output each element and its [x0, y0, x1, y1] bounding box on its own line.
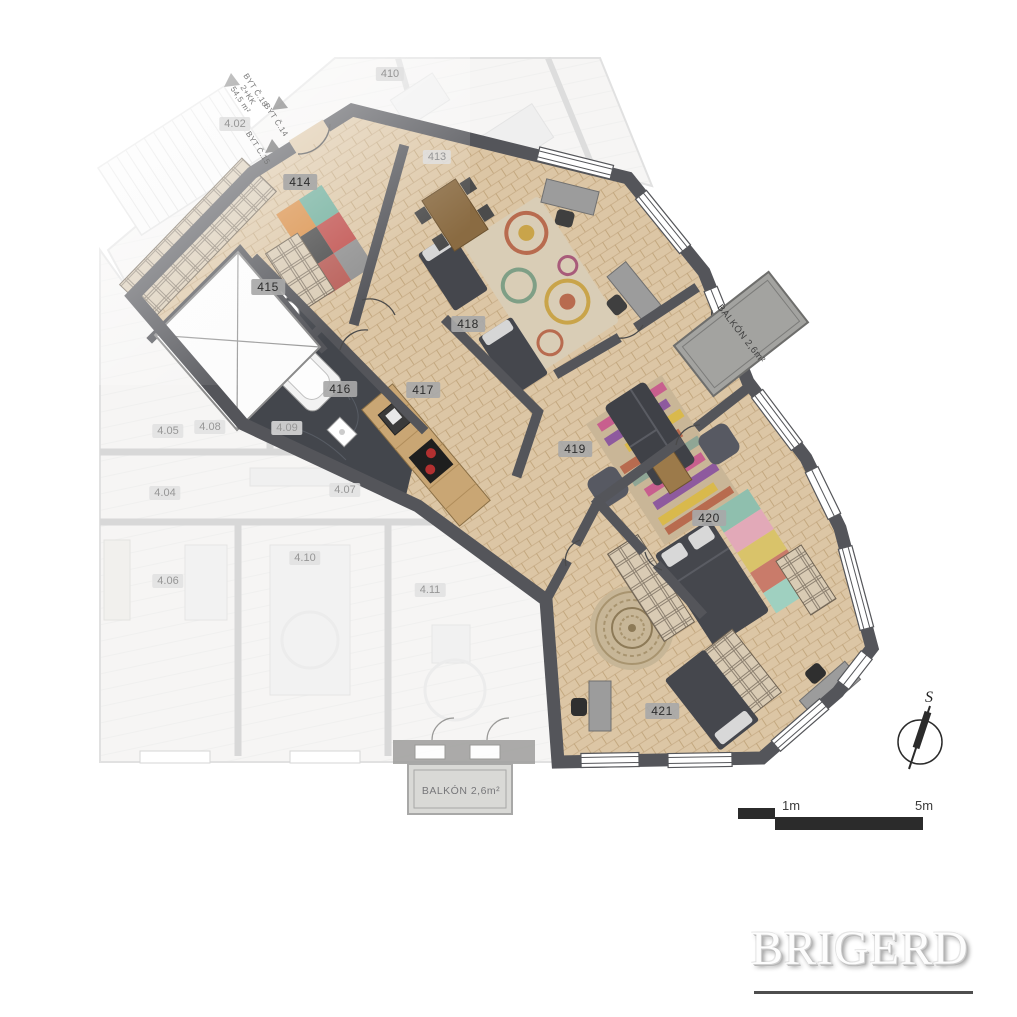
faded-window: [290, 751, 360, 763]
brand-logo-underline: [754, 991, 973, 994]
compass-north-label: S: [925, 689, 933, 707]
window: [668, 752, 732, 767]
room-label-411: 4.11: [415, 583, 446, 597]
window: [581, 752, 639, 767]
room-label-414: 414: [283, 174, 317, 190]
faded-bed-410: [270, 545, 350, 695]
brand-logo: BRIGERD: [751, 921, 969, 976]
room-label-418: 418: [451, 316, 485, 332]
room-label-408: 4.08: [194, 420, 225, 434]
room-label-410-apt: 410: [376, 67, 404, 81]
compass: [898, 706, 942, 769]
room-label-406: 4.06: [152, 574, 183, 588]
compass-needle-thick-icon: [916, 712, 928, 748]
scale-segment-short: [738, 808, 775, 819]
floorplan-canvas: 414 415 416 417 418 419 420 421 4.02 410…: [0, 0, 1017, 1017]
balcony-bottom-label: BALKÓN 2,6m²: [422, 785, 500, 797]
faded-window: [140, 751, 210, 763]
room-label-410: 4.10: [289, 551, 320, 565]
white-fade-overlay: [90, 45, 470, 385]
room-label-407: 4.07: [329, 483, 360, 497]
room-label-415: 415: [251, 279, 285, 295]
room-label-421: 421: [645, 703, 679, 719]
scale-label-5m: 5m: [915, 798, 933, 813]
room-label-404: 4.04: [149, 486, 180, 500]
room-label-419: 419: [558, 441, 592, 457]
room-label-420: 420: [692, 510, 726, 526]
scale-bar: [738, 808, 923, 830]
scale-segment-long: [775, 817, 923, 830]
room-label-405: 4.05: [152, 424, 183, 438]
faded-wardrobe: [104, 540, 130, 620]
room-label-416: 416: [323, 381, 357, 397]
scale-label-1m: 1m: [782, 798, 800, 813]
room-label-402: 4.02: [219, 117, 250, 131]
faded-bed-406: [185, 545, 227, 620]
faded-armchair-411: [432, 625, 470, 663]
room-label-409: 4.09: [271, 421, 302, 435]
room-label-417: 417: [406, 382, 440, 398]
floorplan-drawing: [0, 0, 1017, 1017]
room-label-413: 413: [423, 150, 451, 164]
